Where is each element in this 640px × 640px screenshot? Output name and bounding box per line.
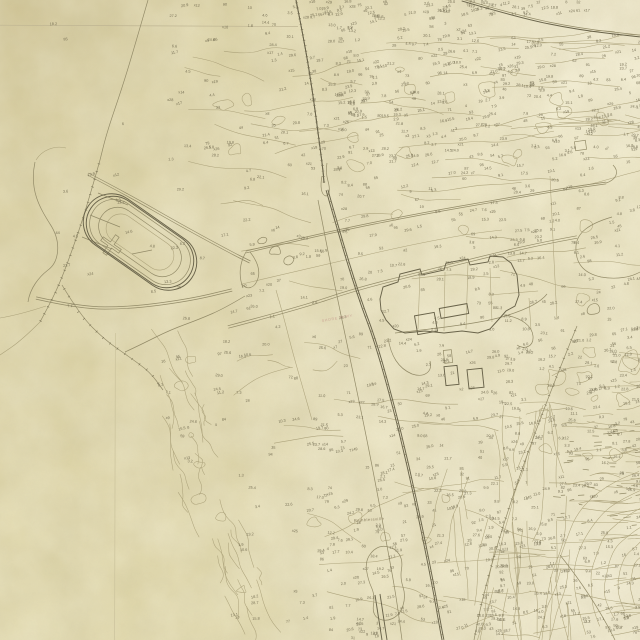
svg-text:23.7: 23.7 [620, 66, 628, 70]
svg-text:20.0: 20.0 [262, 342, 269, 346]
svg-text:70: 70 [322, 147, 327, 151]
svg-text:7.3: 7.3 [299, 601, 304, 605]
svg-text:1.9: 1.9 [330, 616, 336, 620]
svg-text:19.3: 19.3 [393, 113, 401, 117]
svg-text:15.1: 15.1 [333, 168, 341, 173]
svg-text:26.0: 26.0 [492, 350, 499, 354]
svg-text:28: 28 [467, 538, 472, 542]
svg-text:3.8: 3.8 [469, 240, 475, 244]
svg-text:6.4: 6.4 [621, 78, 626, 82]
svg-text:59: 59 [316, 254, 321, 258]
svg-text:x10: x10 [346, 50, 353, 55]
svg-text:8.0: 8.0 [479, 508, 484, 512]
svg-text:91: 91 [466, 476, 470, 480]
svg-text:9.9: 9.9 [483, 486, 488, 490]
svg-text:28.6: 28.6 [318, 447, 325, 451]
svg-text:15.8: 15.8 [252, 617, 259, 621]
svg-text:21.2: 21.2 [387, 62, 394, 66]
svg-text:7.3: 7.3 [236, 390, 242, 394]
svg-text:17.4: 17.4 [575, 300, 583, 305]
svg-text:x28: x28 [303, 15, 309, 19]
svg-text:4.6: 4.6 [633, 484, 639, 488]
svg-text:x21: x21 [615, 50, 622, 55]
svg-text:96: 96 [567, 488, 572, 493]
svg-text:5.3: 5.3 [337, 413, 342, 417]
svg-text:43: 43 [469, 155, 474, 160]
svg-text:85: 85 [63, 37, 68, 41]
svg-text:3.1: 3.1 [457, 37, 462, 41]
svg-text:1.1: 1.1 [596, 448, 601, 452]
svg-text:7.3: 7.3 [324, 124, 329, 128]
svg-text:x25: x25 [292, 529, 299, 534]
svg-text:6.6: 6.6 [376, 525, 382, 529]
svg-text:20: 20 [552, 423, 557, 427]
svg-text:78: 78 [580, 152, 584, 156]
svg-text:19.8: 19.8 [546, 75, 553, 79]
svg-text:98: 98 [437, 71, 442, 76]
svg-text:6.8: 6.8 [584, 559, 590, 564]
svg-text:x26: x26 [507, 64, 513, 68]
svg-text:x15: x15 [604, 589, 611, 594]
svg-text:7.9: 7.9 [523, 112, 528, 116]
svg-text:19.6: 19.6 [565, 407, 573, 411]
svg-text:9.2: 9.2 [556, 107, 562, 112]
svg-text:9.5: 9.5 [561, 423, 567, 428]
svg-text:24.9: 24.9 [411, 154, 419, 158]
svg-text:95: 95 [500, 578, 505, 583]
svg-text:8.3: 8.3 [307, 487, 312, 491]
svg-text:11.0: 11.0 [318, 394, 325, 398]
svg-text:83: 83 [594, 483, 598, 487]
svg-text:35: 35 [404, 113, 409, 117]
svg-text:3.0: 3.0 [541, 605, 547, 609]
svg-text:16.0: 16.0 [477, 614, 484, 618]
svg-text:17.6: 17.6 [611, 617, 619, 621]
svg-text:25.6: 25.6 [319, 346, 327, 351]
svg-text:x28: x28 [560, 368, 566, 373]
svg-text:5.7: 5.7 [632, 547, 638, 552]
svg-text:71: 71 [551, 512, 556, 516]
svg-text:13.3: 13.3 [164, 279, 172, 284]
svg-text:6.5: 6.5 [626, 346, 632, 351]
svg-text:6.2: 6.2 [547, 430, 553, 435]
svg-text:4.4: 4.4 [547, 94, 552, 98]
svg-text:9: 9 [618, 586, 620, 590]
svg-text:29: 29 [321, 140, 326, 145]
svg-text:5.2: 5.2 [508, 70, 513, 74]
svg-text:71: 71 [347, 391, 351, 395]
svg-text:x27: x27 [363, 567, 369, 571]
svg-text:19.5: 19.5 [605, 606, 613, 610]
svg-text:8.1: 8.1 [612, 441, 617, 445]
svg-text:5.7: 5.7 [491, 4, 497, 9]
svg-text:1.2: 1.2 [539, 367, 545, 371]
svg-text:27.5: 27.5 [515, 229, 523, 234]
svg-text:48: 48 [523, 119, 528, 123]
svg-text:6.7: 6.7 [349, 145, 355, 150]
svg-text:16: 16 [621, 553, 626, 558]
svg-text:31: 31 [631, 577, 636, 582]
svg-text:x7: x7 [333, 345, 338, 350]
svg-text:24.8: 24.8 [481, 390, 489, 394]
svg-text:92: 92 [499, 570, 504, 574]
svg-text:29.2: 29.2 [582, 484, 590, 489]
svg-text:25.9: 25.9 [601, 531, 609, 535]
svg-text:62: 62 [572, 59, 577, 63]
svg-text:8.8: 8.8 [515, 432, 521, 436]
svg-text:9.8: 9.8 [499, 613, 504, 617]
svg-text:21.7: 21.7 [389, 159, 397, 164]
svg-text:96: 96 [329, 448, 334, 453]
svg-text:15.5: 15.5 [498, 618, 505, 622]
svg-text:26.5: 26.5 [426, 465, 433, 469]
svg-text:10.8: 10.8 [522, 327, 529, 331]
svg-text:27.0: 27.0 [634, 563, 640, 567]
svg-text:9.6: 9.6 [429, 17, 435, 21]
svg-text:17.5: 17.5 [377, 398, 385, 403]
svg-text:x26: x26 [489, 209, 495, 214]
svg-text:14.5: 14.5 [484, 166, 492, 171]
svg-text:4.1: 4.1 [615, 244, 620, 248]
svg-text:49: 49 [353, 447, 358, 452]
svg-text:53: 53 [379, 246, 383, 250]
svg-text:x5: x5 [542, 300, 546, 304]
svg-text:70: 70 [340, 277, 345, 282]
svg-text:28.9: 28.9 [371, 402, 378, 406]
svg-text:x21: x21 [561, 80, 567, 84]
svg-text:4.1: 4.1 [549, 364, 555, 368]
svg-text:x6: x6 [271, 228, 275, 232]
svg-text:5.8: 5.8 [406, 578, 411, 582]
svg-text:x28: x28 [468, 386, 475, 391]
svg-text:42: 42 [301, 153, 306, 157]
svg-text:18.2: 18.2 [223, 340, 231, 345]
svg-text:1.8: 1.8 [306, 255, 311, 259]
svg-text:20.1: 20.1 [423, 34, 431, 38]
svg-text:24.5: 24.5 [213, 387, 221, 392]
svg-text:x14: x14 [322, 442, 328, 446]
svg-text:7.5: 7.5 [534, 40, 539, 44]
svg-text:9.5: 9.5 [342, 230, 348, 234]
svg-text:8.0: 8.0 [353, 54, 358, 58]
svg-text:19: 19 [499, 400, 504, 404]
svg-text:5: 5 [404, 13, 406, 17]
svg-text:11.5: 11.5 [400, 609, 407, 614]
svg-text:14.4: 14.4 [399, 342, 406, 346]
svg-text:3.8: 3.8 [292, 255, 298, 260]
svg-text:x8: x8 [412, 502, 416, 506]
svg-text:x21: x21 [390, 622, 396, 626]
svg-text:79: 79 [375, 530, 380, 534]
svg-text:3.9: 3.9 [510, 357, 516, 361]
svg-text:95: 95 [394, 226, 398, 230]
svg-text:1.4: 1.4 [633, 552, 639, 557]
svg-text:x22: x22 [431, 53, 437, 58]
svg-text:28.9: 28.9 [441, 358, 448, 362]
svg-text:x28: x28 [167, 98, 173, 102]
svg-text:46: 46 [502, 87, 507, 91]
svg-text:54: 54 [365, 67, 369, 71]
svg-text:10.1: 10.1 [286, 35, 294, 40]
svg-text:1.7: 1.7 [337, 26, 342, 30]
svg-text:1.9: 1.9 [416, 349, 421, 353]
svg-text:1.9: 1.9 [488, 526, 493, 530]
svg-text:26.0: 26.0 [250, 304, 258, 308]
svg-text:74: 74 [339, 193, 344, 197]
svg-text:64: 64 [563, 187, 567, 191]
svg-text:6: 6 [122, 122, 124, 126]
svg-text:71: 71 [447, 108, 452, 112]
svg-text:x26: x26 [469, 361, 475, 365]
svg-text:14.7: 14.7 [356, 617, 364, 622]
svg-text:18.5: 18.5 [381, 114, 389, 118]
svg-text:68: 68 [541, 217, 545, 221]
svg-text:22.6: 22.6 [398, 262, 406, 267]
svg-text:28.1: 28.1 [281, 130, 289, 134]
svg-text:7.2: 7.2 [512, 517, 518, 521]
svg-text:20.9: 20.9 [486, 434, 493, 438]
svg-text:25.6: 25.6 [459, 489, 467, 494]
svg-text:44: 44 [365, 127, 370, 132]
svg-text:22.1: 22.1 [491, 482, 498, 486]
svg-text:21: 21 [450, 371, 455, 376]
svg-text:56: 56 [365, 185, 370, 190]
svg-text:9.4: 9.4 [476, 529, 481, 533]
svg-text:49: 49 [412, 97, 417, 101]
svg-text:1.4: 1.4 [554, 316, 560, 320]
svg-text:7.1: 7.1 [67, 304, 72, 308]
svg-text:25.8: 25.8 [534, 228, 541, 232]
svg-text:14.3: 14.3 [379, 420, 386, 424]
svg-text:14.0: 14.0 [578, 273, 586, 278]
svg-text:3.3: 3.3 [564, 444, 569, 448]
svg-text:27.8: 27.8 [623, 439, 630, 443]
svg-text:7.5: 7.5 [528, 4, 534, 9]
svg-text:22: 22 [596, 571, 600, 575]
svg-text:5.2: 5.2 [528, 257, 533, 261]
svg-text:16.9: 16.9 [440, 119, 448, 123]
svg-text:71: 71 [511, 272, 516, 276]
svg-text:34: 34 [416, 457, 421, 462]
svg-text:43: 43 [489, 627, 494, 632]
svg-text:88: 88 [294, 376, 299, 381]
svg-text:10.6: 10.6 [240, 548, 248, 552]
svg-text:17.5: 17.5 [521, 171, 528, 175]
svg-text:19.0: 19.0 [340, 286, 348, 291]
svg-text:3.4: 3.4 [627, 335, 633, 340]
svg-text:13.0: 13.0 [328, 23, 336, 28]
svg-text:9.5: 9.5 [494, 500, 500, 504]
svg-text:27.4: 27.4 [435, 541, 443, 546]
svg-text:77: 77 [286, 619, 291, 624]
svg-text:89: 89 [313, 417, 318, 421]
svg-text:28.4: 28.4 [269, 43, 276, 47]
svg-text:9.9: 9.9 [435, 210, 441, 215]
svg-text:21: 21 [432, 523, 437, 528]
svg-text:26.6: 26.6 [448, 49, 456, 53]
svg-text:7.0: 7.0 [241, 284, 247, 288]
svg-text:21: 21 [610, 344, 615, 348]
svg-text:22.0: 22.0 [607, 306, 615, 310]
svg-text:8.3: 8.3 [336, 62, 341, 66]
svg-text:59: 59 [517, 581, 522, 586]
svg-text:3.7: 3.7 [339, 5, 344, 9]
svg-text:94: 94 [268, 453, 272, 457]
svg-text:8.5: 8.5 [523, 610, 529, 615]
svg-text:65: 65 [250, 272, 254, 276]
svg-text:3.5: 3.5 [635, 606, 640, 610]
svg-text:9.4: 9.4 [460, 322, 466, 327]
svg-text:17.7: 17.7 [615, 625, 623, 629]
svg-text:6.3: 6.3 [542, 624, 548, 629]
svg-text:54: 54 [389, 100, 393, 104]
svg-text:46: 46 [441, 417, 446, 421]
svg-text:x28: x28 [550, 64, 556, 68]
svg-text:9.4: 9.4 [585, 569, 591, 573]
svg-text:26.4: 26.4 [632, 473, 640, 477]
svg-text:83: 83 [500, 78, 504, 82]
svg-text:79: 79 [623, 417, 628, 422]
svg-text:24: 24 [423, 595, 427, 599]
svg-text:86: 86 [320, 557, 324, 561]
svg-text:39: 39 [633, 136, 638, 140]
svg-text:14: 14 [431, 101, 435, 105]
svg-text:x21: x21 [334, 117, 340, 121]
svg-text:53: 53 [421, 617, 426, 621]
svg-text:34: 34 [364, 90, 369, 94]
svg-text:x3: x3 [405, 134, 409, 138]
svg-text:25.4: 25.4 [489, 112, 497, 116]
svg-text:19.2: 19.2 [377, 567, 384, 571]
svg-text:73: 73 [477, 301, 481, 305]
svg-text:33: 33 [216, 105, 221, 109]
svg-text:2.3: 2.3 [401, 83, 406, 87]
svg-text:23.4: 23.4 [620, 373, 627, 377]
svg-text:x2: x2 [459, 387, 463, 391]
svg-text:10.3: 10.3 [437, 8, 445, 13]
svg-text:x21: x21 [458, 142, 464, 146]
svg-text:29.2: 29.2 [503, 82, 511, 86]
svg-text:25: 25 [177, 285, 182, 290]
svg-text:3.7: 3.7 [511, 12, 516, 16]
svg-text:75: 75 [357, 3, 362, 8]
svg-text:x23: x23 [502, 565, 508, 569]
svg-text:x18: x18 [310, 98, 316, 102]
svg-text:9.9: 9.9 [371, 382, 376, 386]
svg-text:x29: x29 [326, 0, 332, 5]
svg-text:46: 46 [512, 187, 517, 191]
svg-text:6.5: 6.5 [588, 583, 593, 587]
svg-text:28.2: 28.2 [301, 236, 309, 240]
svg-text:14: 14 [632, 48, 637, 53]
svg-text:27.3: 27.3 [372, 153, 380, 157]
svg-text:4.5: 4.5 [185, 70, 190, 74]
svg-text:6.8: 6.8 [250, 177, 255, 181]
svg-text:16: 16 [161, 359, 166, 364]
svg-text:28.4: 28.4 [513, 190, 521, 194]
svg-text:24.2: 24.2 [461, 171, 469, 175]
svg-text:57: 57 [515, 481, 519, 485]
svg-text:x21: x21 [490, 11, 496, 15]
svg-text:93: 93 [545, 146, 550, 150]
svg-text:11.2: 11.2 [573, 611, 580, 616]
svg-text:57: 57 [401, 534, 405, 538]
svg-text:6.0: 6.0 [341, 128, 346, 132]
svg-text:15.1: 15.1 [565, 101, 572, 105]
svg-text:11.1: 11.1 [570, 412, 577, 416]
svg-text:8.9: 8.9 [334, 73, 339, 77]
svg-text:7.7: 7.7 [345, 604, 350, 608]
svg-text:19: 19 [478, 99, 482, 103]
svg-text:86: 86 [213, 37, 218, 42]
svg-text:89: 89 [579, 74, 584, 78]
svg-text:9.3: 9.3 [469, 0, 475, 4]
svg-text:8.4: 8.4 [347, 183, 353, 187]
svg-text:66: 66 [561, 285, 565, 289]
svg-text:21.8: 21.8 [396, 121, 404, 126]
svg-text:70: 70 [464, 566, 469, 570]
svg-text:72: 72 [527, 94, 532, 98]
svg-text:8.6: 8.6 [503, 446, 509, 451]
svg-text:80: 80 [418, 56, 423, 61]
svg-text:14.3: 14.3 [489, 235, 497, 240]
svg-text:22: 22 [578, 355, 582, 359]
svg-text:6.3: 6.3 [578, 189, 583, 193]
svg-text:19: 19 [524, 497, 528, 501]
svg-text:x24: x24 [569, 9, 575, 13]
svg-text:29.7: 29.7 [505, 362, 512, 366]
svg-text:1.7: 1.7 [636, 105, 640, 110]
svg-text:82: 82 [509, 391, 514, 395]
svg-text:x15: x15 [554, 452, 560, 456]
svg-text:5.9: 5.9 [249, 243, 255, 247]
svg-text:7.2: 7.2 [551, 53, 556, 57]
svg-text:19: 19 [419, 205, 423, 209]
svg-text:29.9: 29.9 [416, 515, 424, 519]
svg-text:89: 89 [505, 530, 510, 534]
svg-text:26: 26 [573, 579, 578, 583]
svg-text:79: 79 [324, 500, 329, 505]
svg-text:1.5: 1.5 [478, 518, 484, 522]
svg-text:60: 60 [361, 544, 366, 548]
svg-text:2.8: 2.8 [489, 260, 495, 264]
svg-text:20.5: 20.5 [551, 178, 559, 183]
svg-text:x10: x10 [222, 25, 228, 29]
svg-text:5.1: 5.1 [293, 5, 299, 10]
svg-text:28.2: 28.2 [585, 117, 593, 121]
svg-text:65: 65 [612, 332, 617, 336]
svg-text:6.1: 6.1 [574, 250, 580, 254]
svg-text:13.7: 13.7 [517, 259, 524, 263]
svg-text:4.9: 4.9 [520, 284, 525, 288]
svg-text:x15: x15 [592, 298, 598, 302]
svg-text:1.2: 1.2 [601, 561, 607, 565]
svg-text:15.7: 15.7 [548, 354, 556, 358]
svg-text:24.1: 24.1 [538, 616, 545, 620]
svg-text:73: 73 [576, 382, 581, 387]
svg-text:10.3: 10.3 [486, 558, 493, 562]
svg-text:29.6: 29.6 [289, 53, 297, 58]
svg-text:x17: x17 [478, 397, 484, 401]
svg-text:65: 65 [374, 176, 379, 181]
svg-text:14.9: 14.9 [513, 607, 521, 612]
svg-text:5: 5 [491, 390, 493, 394]
svg-text:x12: x12 [194, 3, 200, 8]
svg-text:3: 3 [444, 21, 446, 25]
svg-text:23.8: 23.8 [527, 581, 535, 585]
svg-text:17.6: 17.6 [357, 113, 365, 118]
svg-text:5.0: 5.0 [537, 239, 542, 243]
